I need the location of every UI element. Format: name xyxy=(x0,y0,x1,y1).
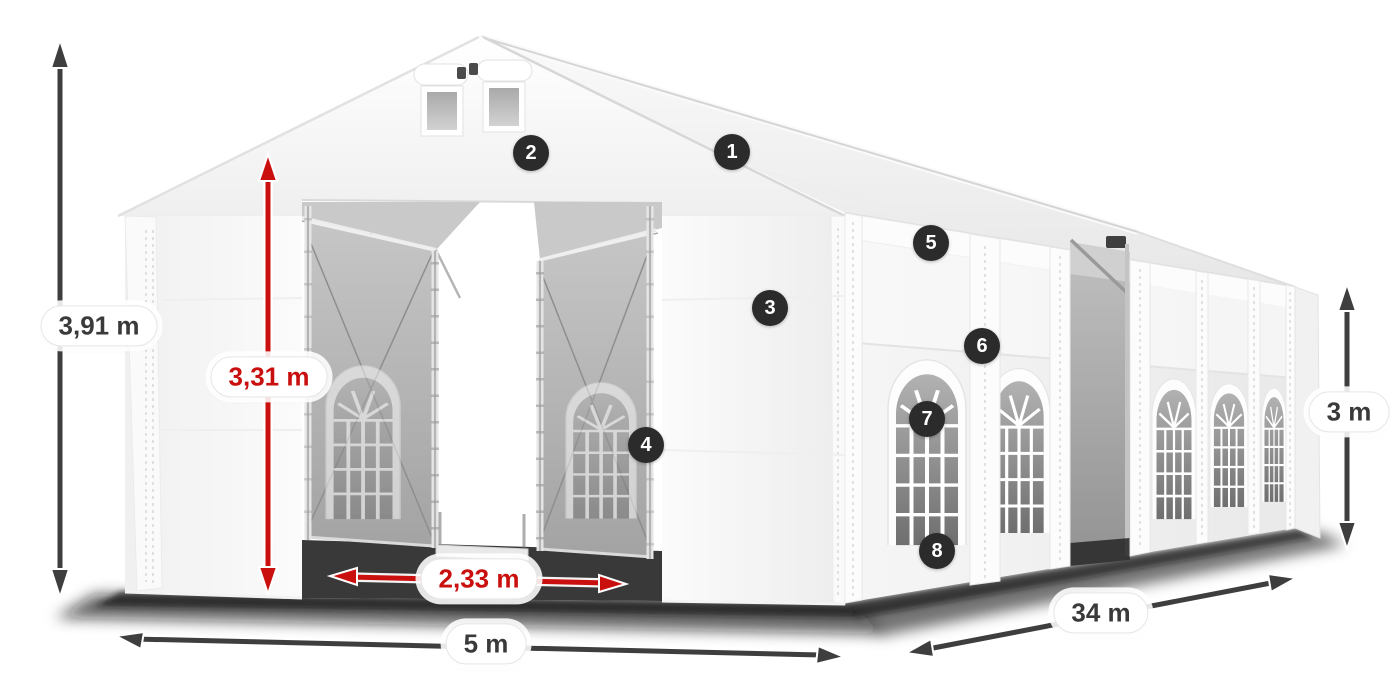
vent-clamp-right xyxy=(469,63,478,75)
dimension-label-entrance-width: 2,33 m xyxy=(421,558,538,599)
side-window-1 xyxy=(888,360,966,545)
dimension-label-side-length: 34 m xyxy=(1053,592,1148,633)
tent-illustration xyxy=(0,0,1400,700)
feature-marker-6: 6 xyxy=(964,328,1000,364)
dimension-label-side-height: 3 m xyxy=(1309,391,1390,432)
front-wall-right xyxy=(662,216,845,604)
tent-dimension-diagram: 3,91 m 3,31 m 2,33 m 5 m 34 m 3 m 1 2 3 … xyxy=(0,0,1400,700)
side-doorway xyxy=(1070,236,1130,566)
feature-marker-4: 4 xyxy=(628,427,664,463)
dimension-label-total-height: 3,91 m xyxy=(41,305,158,346)
front-opening xyxy=(302,200,662,601)
vent-window-left xyxy=(421,86,463,136)
feature-marker-2: 2 xyxy=(513,135,549,171)
side-window-3 xyxy=(1152,379,1196,519)
front-wall-left xyxy=(125,216,302,598)
entrance-door-right xyxy=(540,233,652,557)
dimension-label-entrance-height: 3,31 m xyxy=(211,356,328,397)
feature-marker-8: 8 xyxy=(919,533,955,569)
feature-marker-5: 5 xyxy=(913,225,949,261)
feature-marker-3: 3 xyxy=(752,290,788,326)
vent-clamp-left xyxy=(457,67,466,79)
vent-window-right xyxy=(483,82,525,132)
feature-marker-7: 7 xyxy=(909,401,945,437)
dimension-label-front-width: 5 m xyxy=(446,623,527,664)
vent-roll-right xyxy=(477,60,532,81)
feature-marker-1: 1 xyxy=(714,134,750,170)
side-window-5 xyxy=(1262,388,1286,502)
side-window-4 xyxy=(1210,384,1248,507)
